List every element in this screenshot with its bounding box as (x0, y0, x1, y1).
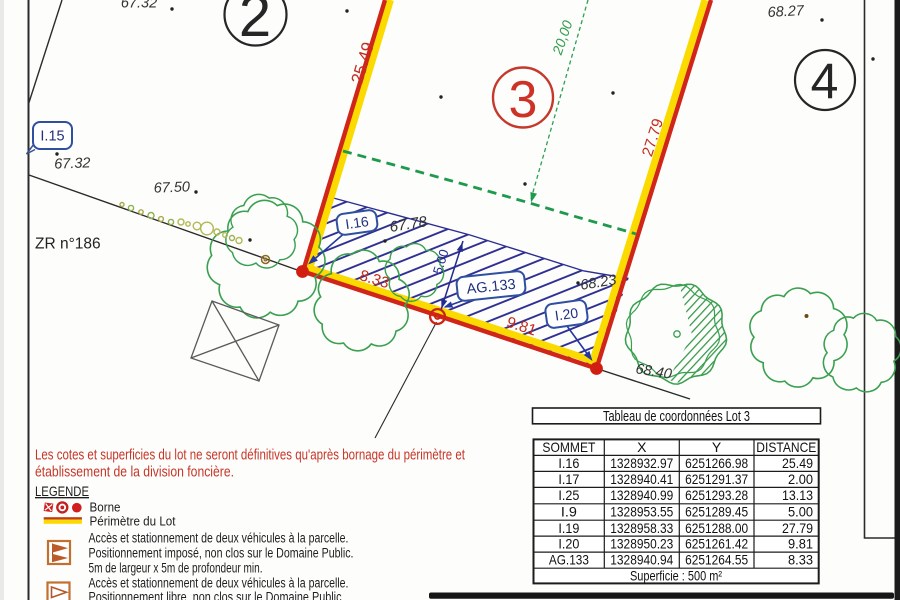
svg-text:2.00: 2.00 (788, 471, 813, 487)
svg-text:Superficie : 500 m²: Superficie : 500 m² (630, 568, 722, 584)
svg-text:1328940.94: 1328940.94 (610, 552, 673, 568)
svg-text:25.49: 25.49 (782, 455, 813, 471)
svg-text:Positionnement imposé, non clo: Positionnement imposé, non clos sur le D… (89, 546, 354, 561)
svg-text:1328950.23: 1328950.23 (610, 536, 673, 552)
svg-text:2: 2 (239, 0, 271, 49)
svg-text:I.9: I.9 (561, 503, 577, 519)
svg-text:I.20: I.20 (558, 536, 579, 552)
svg-text:X: X (637, 439, 647, 455)
svg-text:I.25: I.25 (558, 487, 579, 503)
svg-text:Y: Y (712, 439, 722, 455)
svg-text:1328953.55: 1328953.55 (610, 503, 673, 519)
svg-text:6251264.55: 6251264.55 (685, 552, 748, 568)
svg-text:13.13: 13.13 (782, 487, 813, 503)
svg-text:1328932.97: 1328932.97 (610, 455, 673, 471)
svg-text:6251261.42: 6251261.42 (685, 536, 748, 552)
svg-text:Périmètre du Lot: Périmètre du Lot (90, 514, 176, 529)
svg-text:I.20: I.20 (554, 304, 580, 323)
svg-text:5.00: 5.00 (788, 503, 813, 519)
svg-text:DISTANCE: DISTANCE (756, 439, 816, 455)
svg-text:I.17: I.17 (558, 471, 579, 487)
svg-text:SOMMET: SOMMET (542, 439, 595, 455)
svg-text:6251266.98: 6251266.98 (685, 455, 748, 471)
svg-text:établissement de la division f: établissement de la division foncière. (35, 465, 234, 481)
svg-text:6251289.45: 6251289.45 (685, 503, 748, 519)
svg-text:5m de largeur x 5m de profonde: 5m de largeur x 5m de profondeur min. (89, 561, 263, 576)
svg-text:1328958.33: 1328958.33 (610, 520, 673, 536)
svg-text:6251293.28: 6251293.28 (685, 487, 748, 503)
svg-text:67.32: 67.32 (121, 0, 157, 12)
svg-text:68.27: 68.27 (767, 3, 805, 21)
svg-text:3: 3 (509, 71, 538, 129)
svg-text:1328940.41: 1328940.41 (610, 471, 673, 487)
svg-text:Accès et stationnement de deux: Accès et stationnement de deux véhicules… (89, 576, 349, 591)
svg-text:ZR n°186: ZR n°186 (35, 236, 101, 253)
svg-text:6251291.37: 6251291.37 (685, 471, 748, 487)
svg-text:9.81: 9.81 (788, 536, 813, 552)
svg-text:8.33: 8.33 (788, 552, 813, 568)
svg-text:1328940.99: 1328940.99 (610, 487, 673, 503)
svg-text:AG.133: AG.133 (549, 552, 589, 568)
svg-text:6251288.00: 6251288.00 (685, 520, 748, 536)
svg-text:I.15: I.15 (40, 129, 64, 145)
svg-text:27.79: 27.79 (782, 520, 813, 536)
svg-text:Borne: Borne (90, 500, 121, 515)
svg-text:I.16: I.16 (558, 455, 579, 471)
svg-text:LEGENDE: LEGENDE (35, 484, 89, 499)
svg-text:Accès et stationnement de deux: Accès et stationnement de deux véhicules… (89, 531, 349, 546)
svg-text:67.50: 67.50 (153, 179, 190, 196)
svg-text:Tableau de coordonnées Lot 3: Tableau de coordonnées Lot 3 (603, 409, 750, 425)
svg-text:67.32: 67.32 (54, 155, 91, 172)
svg-text:Les cotes et superficies du lo: Les cotes et superficies du lot ne seron… (35, 448, 465, 464)
svg-text:Positionnement libre, non clos: Positionnement libre, non clos sur le Do… (89, 590, 345, 600)
svg-text:4: 4 (811, 54, 839, 110)
svg-text:I.16: I.16 (344, 213, 370, 232)
svg-text:I.19: I.19 (558, 520, 579, 536)
